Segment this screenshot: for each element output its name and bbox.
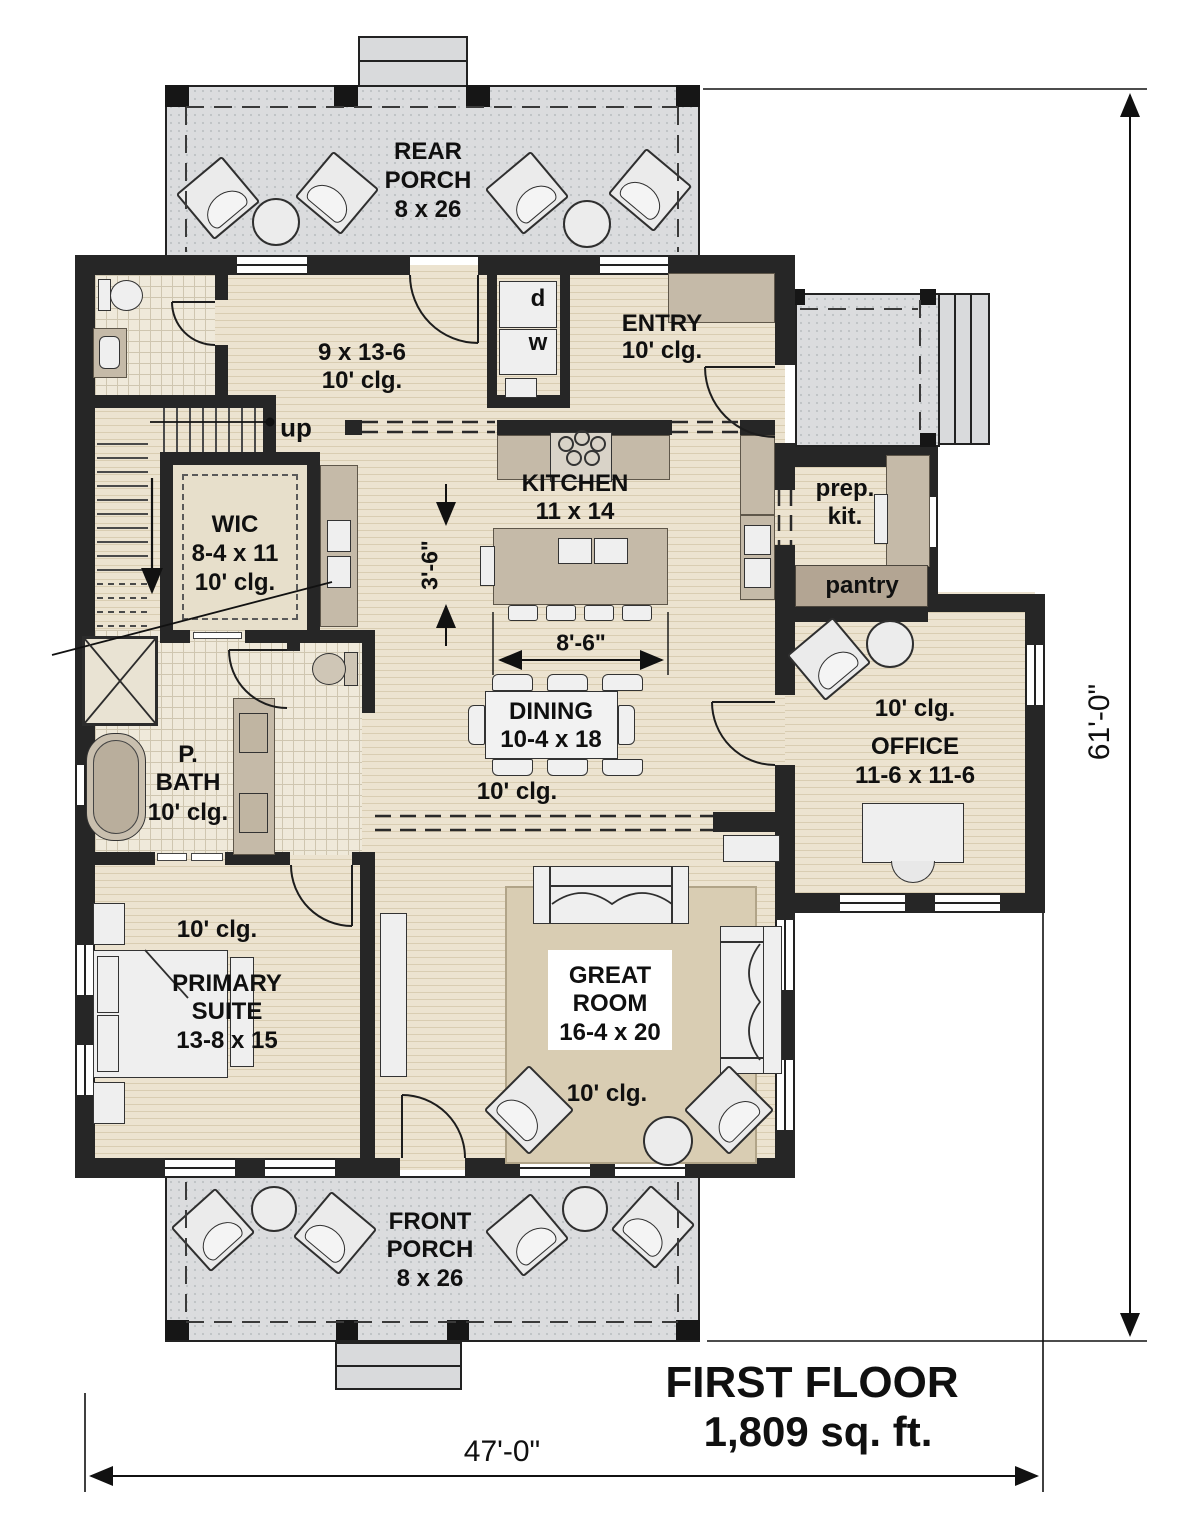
- porch-column: [336, 1320, 358, 1340]
- pillow: [97, 1015, 119, 1072]
- wall: [160, 630, 190, 643]
- island-sink: [558, 538, 592, 564]
- pantry-label: pantry: [825, 572, 898, 600]
- bathtub-basin: [93, 740, 139, 834]
- wall: [478, 255, 600, 275]
- wall: [362, 643, 375, 713]
- great-room-size: 16-4 x 20: [559, 1019, 660, 1047]
- kitchen-size: 11 x 14: [536, 498, 615, 526]
- porch-table: [563, 200, 611, 248]
- rear-porch-steps: [358, 36, 468, 88]
- dining-label: DINING: [509, 698, 593, 726]
- prep-kitchen-label: prep.: [816, 475, 875, 503]
- dining-chair: [492, 674, 533, 691]
- front-porch-steps: [335, 1342, 462, 1390]
- wall: [160, 452, 173, 643]
- laundry-base: [505, 378, 537, 398]
- island-stool: [546, 605, 576, 621]
- porch-column: [676, 1320, 700, 1340]
- primary-bath-ceiling: 10' clg.: [148, 799, 228, 827]
- primary-suite-size: 13-8 x 15: [176, 1027, 277, 1055]
- wall: [713, 812, 795, 832]
- sofa-arm: [533, 866, 550, 924]
- porch-column: [165, 1320, 189, 1340]
- office-size: 11-6 x 11-6: [855, 762, 975, 790]
- mud-hall-size: 9 x 13-6: [318, 339, 406, 367]
- toilet-tank: [344, 652, 358, 686]
- porch-column: [165, 85, 189, 107]
- dining-chair: [492, 759, 533, 776]
- cabinet-appliance: [327, 556, 351, 588]
- nightstand: [93, 903, 125, 945]
- cabinet-appliance: [327, 520, 351, 552]
- dining-chair: [602, 674, 643, 691]
- vanity-sink: [239, 793, 268, 833]
- loveseat-arm: [720, 926, 764, 942]
- prep-kitchen-label: kit.: [828, 503, 863, 531]
- wall: [1000, 893, 1045, 913]
- island-stool: [508, 605, 538, 621]
- dining-ceiling: 10' clg.: [477, 778, 557, 806]
- window: [237, 255, 307, 275]
- door-leaf: [157, 853, 187, 861]
- wic-label: WIC: [212, 511, 259, 539]
- dryer-unit: [499, 281, 557, 328]
- round-side-table: [866, 620, 914, 668]
- porch-table: [252, 198, 300, 246]
- front-porch-label: FRONT: [389, 1208, 472, 1236]
- window: [75, 945, 95, 995]
- loveseat-seat: [720, 942, 764, 1058]
- wall: [560, 275, 570, 395]
- console-table: [380, 913, 407, 1077]
- side-porch-steps: [938, 293, 990, 445]
- window: [600, 255, 668, 275]
- wall: [75, 1158, 165, 1178]
- sofa-back: [550, 866, 672, 886]
- oven-door: [744, 525, 771, 555]
- primary-suite-label: SUITE: [192, 998, 263, 1026]
- island-length-dim: 8'-6": [556, 630, 606, 657]
- entry-ceiling: 10' clg.: [622, 337, 702, 365]
- wic-ceiling: 10' clg.: [195, 569, 275, 597]
- primary-suite-ceiling: 10' clg.: [177, 916, 257, 944]
- entry-label: ENTRY: [622, 310, 702, 338]
- nightstand: [93, 1082, 125, 1124]
- wall: [905, 893, 935, 913]
- office-label: OFFICE: [871, 733, 959, 761]
- sofa-seat: [550, 886, 672, 924]
- primary-bath-label: P.: [178, 741, 198, 769]
- wall: [775, 545, 795, 695]
- kitchen-clearance-dim: 3'-6": [417, 540, 444, 590]
- wall: [487, 275, 497, 395]
- porch-column: [466, 85, 490, 107]
- sofa-arm: [672, 866, 689, 924]
- toilet-bowl: [110, 280, 143, 311]
- wall: [235, 1158, 265, 1178]
- porch-table: [562, 1186, 608, 1232]
- powder-sink: [99, 336, 120, 369]
- porch-column: [676, 85, 700, 107]
- window: [840, 893, 905, 913]
- wall: [1025, 594, 1045, 645]
- refrigerator: [740, 435, 775, 515]
- wall: [1025, 705, 1045, 913]
- washer-label: w: [529, 329, 548, 357]
- wall: [795, 893, 840, 913]
- kitchen-label: KITCHEN: [522, 470, 629, 498]
- island-sink: [594, 538, 628, 564]
- door-leaf: [191, 853, 223, 861]
- vanity-sink: [239, 713, 268, 753]
- wall: [215, 275, 228, 300]
- island-stool: [584, 605, 614, 621]
- window: [265, 1158, 335, 1178]
- wall: [307, 452, 320, 643]
- dining-size: 10-4 x 18: [500, 726, 601, 754]
- primary-suite-label: PRIMARY: [172, 970, 282, 998]
- rear-porch-label: PORCH: [385, 167, 472, 195]
- buffet-cabinet: [723, 835, 780, 862]
- dining-chair: [547, 674, 588, 691]
- wall: [307, 255, 410, 275]
- window: [165, 1158, 235, 1178]
- prep-kitchen-counter: [886, 455, 930, 567]
- wall: [775, 467, 795, 490]
- desk: [862, 803, 964, 863]
- dining-chair: [547, 759, 588, 776]
- great-room-label: GREAT: [569, 962, 651, 990]
- overall-depth-dim: 61'-0": [1083, 684, 1117, 760]
- overall-width-dim: 47'-0": [464, 1435, 540, 1469]
- wall: [775, 255, 795, 365]
- office-ceiling: 10' clg.: [875, 695, 955, 723]
- wall: [75, 255, 237, 275]
- loveseat-back: [762, 926, 782, 1074]
- rear-porch-label: REAR: [394, 138, 462, 166]
- wall: [335, 1158, 400, 1178]
- great-room-label: ROOM: [573, 990, 648, 1018]
- mud-hall-ceiling: 10' clg.: [322, 367, 402, 395]
- side-entry-porch-floor: [795, 293, 940, 447]
- dining-chair: [618, 705, 635, 745]
- stairs-up-label: up: [280, 413, 312, 444]
- wall: [75, 995, 95, 1045]
- window: [75, 1045, 95, 1095]
- wall: [160, 452, 320, 465]
- primary-bath-label: BATH: [156, 769, 221, 797]
- round-side-table: [643, 1116, 693, 1166]
- dining-chair: [468, 705, 485, 745]
- wall: [75, 395, 276, 408]
- wall: [775, 607, 928, 622]
- toilet-bowl: [312, 653, 346, 685]
- window: [1025, 645, 1045, 705]
- porch-column: [447, 1320, 469, 1340]
- wall: [245, 630, 375, 643]
- wall: [75, 852, 155, 865]
- pocket-door: [193, 632, 242, 639]
- floor-plan-page: REAR PORCH 8 x 26 9 x 13-6 10' clg. ENTR…: [0, 0, 1200, 1530]
- plan-title: FIRST FLOOR: [665, 1358, 958, 1408]
- front-porch-label: PORCH: [387, 1236, 474, 1264]
- rear-porch-size: 8 x 26: [395, 196, 462, 224]
- dining-chair: [602, 759, 643, 776]
- dryer-label: d: [531, 285, 546, 313]
- front-porch-size: 8 x 26: [397, 1265, 464, 1293]
- oven-door: [744, 558, 771, 588]
- shower: [82, 636, 158, 726]
- wall: [360, 852, 375, 1158]
- wall: [345, 420, 362, 435]
- porch-column: [334, 85, 358, 107]
- island-board: [480, 546, 495, 586]
- plan-area: 1,809 sq. ft.: [704, 1408, 933, 1456]
- island-stool: [622, 605, 652, 621]
- wic-size: 8-4 x 11: [192, 540, 279, 568]
- porch-column: [920, 289, 936, 305]
- pillow: [97, 956, 119, 1013]
- great-room-ceiling: 10' clg.: [567, 1080, 647, 1108]
- prep-counter-board: [874, 494, 888, 544]
- wall: [740, 420, 775, 435]
- wall: [287, 643, 300, 651]
- porch-table: [251, 1186, 297, 1232]
- window: [935, 893, 1000, 913]
